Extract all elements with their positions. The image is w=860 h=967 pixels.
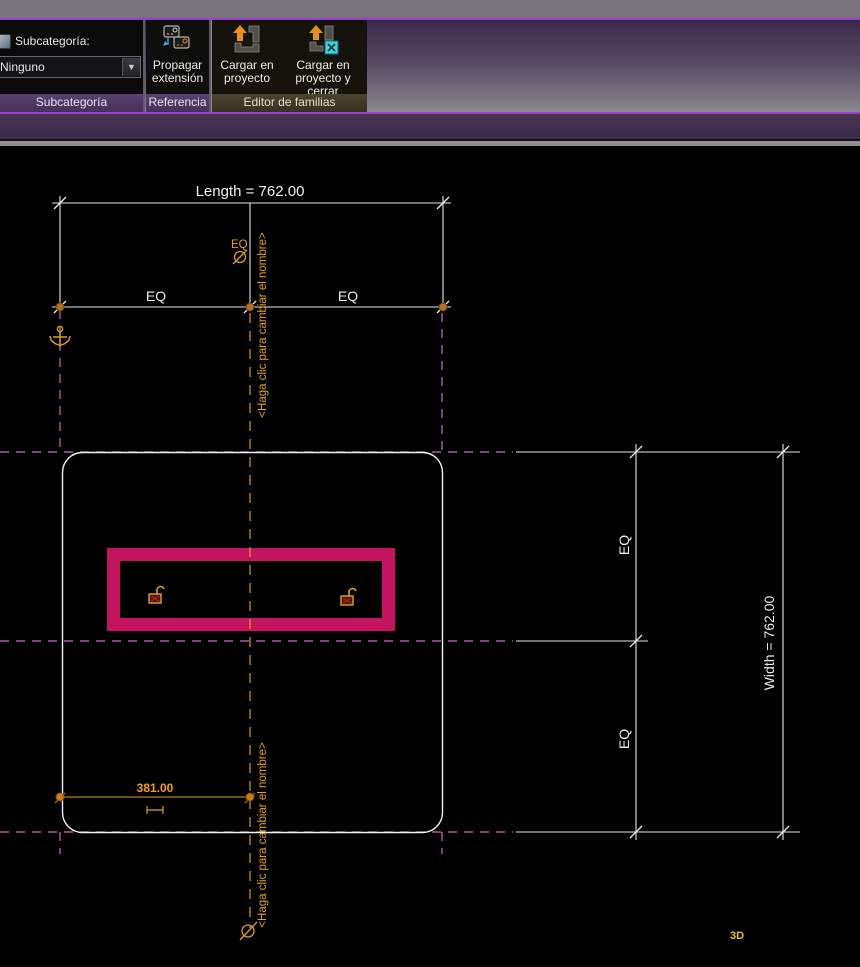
lock-icon[interactable]: [149, 587, 164, 603]
eq-grip-dot[interactable]: [56, 303, 64, 311]
eq-label[interactable]: EQ: [338, 288, 358, 304]
view-3d-text-note[interactable]: 3D: [730, 930, 744, 942]
subcategory-label: Subcategoría:: [15, 34, 90, 48]
dim-381-grip-dot[interactable]: [246, 793, 254, 801]
panel-separator: [143, 20, 145, 112]
panel-referencia: Propagar extensión Referencia: [146, 20, 209, 112]
panel-subcategoria: Subcategoría: Ninguno ▼ Subcategoría: [0, 20, 143, 112]
propagate-extents-button[interactable]: Propagar extensión: [146, 22, 209, 85]
sketch-rounded-square[interactable]: [63, 453, 443, 833]
drawing-canvas: Length = 762.00 EQ EQ EQ EQ Width = 762.…: [0, 146, 860, 967]
chevron-down-icon[interactable]: ▼: [122, 58, 140, 76]
eq-toggle-label[interactable]: EQ: [231, 239, 248, 251]
selected-sketch-rectangle[interactable]: [114, 555, 389, 625]
subcategory-icon: [0, 34, 11, 49]
panel-caption-subcategoria: Subcategoría: [0, 94, 143, 112]
ref-plane-name-label-upper[interactable]: <Haga clic para cambiar el nombre>: [257, 232, 269, 418]
subcategory-select[interactable]: Ninguno ▼: [0, 56, 141, 78]
ribbon-body: Subcategoría: Ninguno ▼ Subcategoría: [0, 20, 860, 112]
eq-label[interactable]: EQ: [616, 729, 632, 749]
length-dim-text[interactable]: Length = 762.00: [196, 183, 305, 200]
subcategory-value: Ninguno: [0, 60, 122, 74]
load-into-project-button[interactable]: Cargar en proyecto: [214, 22, 280, 85]
eq-label[interactable]: EQ: [616, 535, 632, 555]
ribbon: Subcategoría: Ninguno ▼ Subcategoría: [0, 0, 860, 146]
propagate-extents-icon: [161, 22, 195, 56]
eq-toggle-circle-top[interactable]: [233, 250, 247, 264]
ribbon-top-strip: [0, 0, 860, 18]
ref-plane-end-circle-bottom[interactable]: [240, 922, 257, 940]
dim-381-grip-dot[interactable]: [56, 793, 64, 801]
dim-381-text[interactable]: 381.00: [137, 781, 174, 795]
options-bar: [0, 114, 860, 139]
lock-icon[interactable]: [341, 589, 356, 605]
eq-grip-dot[interactable]: [439, 303, 447, 311]
divider-grey: [0, 141, 860, 146]
revit-family-editor: Length = 762.00 EQ EQ EQ EQ Width = 762.…: [0, 0, 860, 967]
eq-label[interactable]: EQ: [146, 288, 166, 304]
load-into-project-icon: [230, 22, 264, 56]
eq-grip-dot[interactable]: [246, 303, 254, 311]
width-dim-text[interactable]: Width = 762.00: [761, 596, 777, 691]
dim-381-text-handle[interactable]: [147, 806, 163, 814]
load-into-project-and-close-icon: [306, 22, 340, 56]
panel-caption-editor-familias: Editor de familias: [212, 94, 367, 112]
load-into-project-and-close-button[interactable]: Cargar en proyecto y cerrar: [280, 22, 366, 98]
panel-editor-familias: Cargar en proyecto Cargar en proyecto y …: [211, 20, 367, 112]
ref-plane-name-label-lower[interactable]: <Haga clic para cambiar el nombre>: [257, 742, 269, 928]
panel-caption-referencia: Referencia: [146, 94, 209, 112]
